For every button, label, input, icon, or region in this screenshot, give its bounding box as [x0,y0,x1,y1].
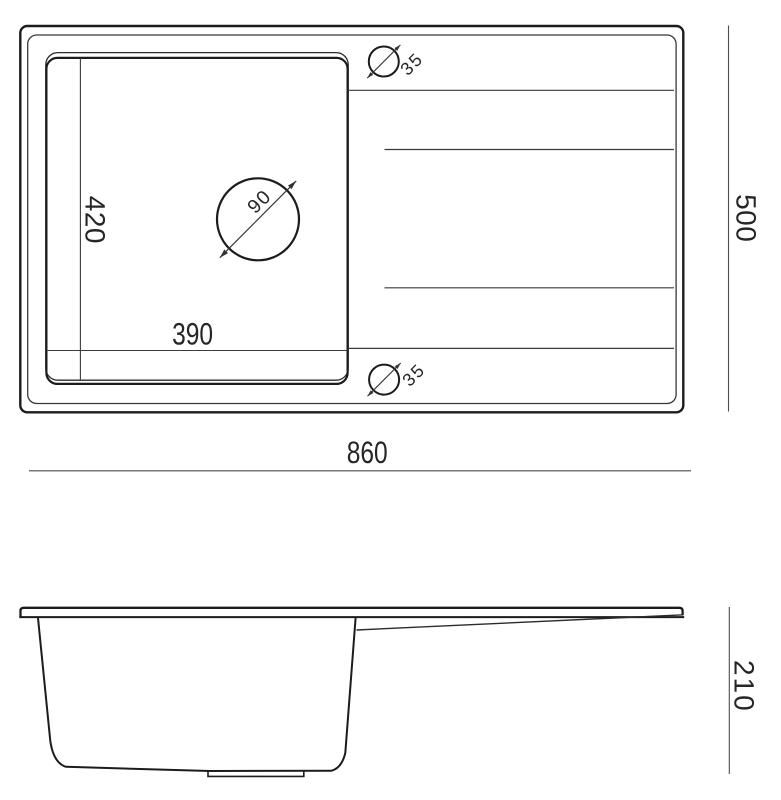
svg-text:210: 210 [729,660,760,713]
svg-text:390: 390 [172,316,213,351]
svg-text:420: 420 [79,196,110,244]
svg-text:860: 860 [347,435,388,470]
svg-text:35: 35 [396,48,427,79]
svg-text:35: 35 [398,359,429,390]
svg-text:500: 500 [731,194,762,242]
svg-text:90: 90 [243,185,276,218]
